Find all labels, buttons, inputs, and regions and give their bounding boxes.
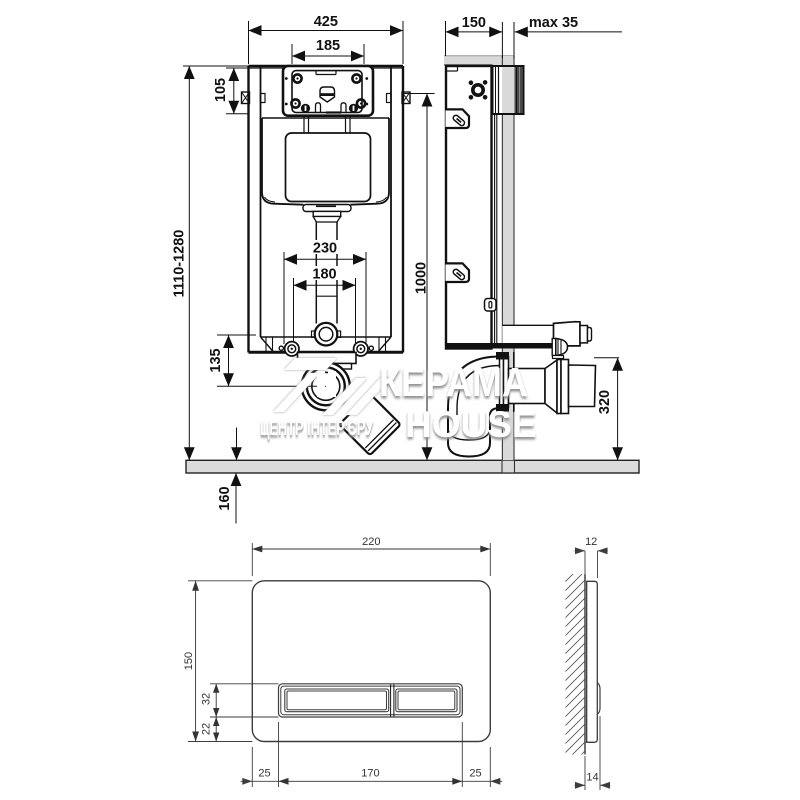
svg-text:32: 32 xyxy=(201,693,213,705)
svg-text:425: 425 xyxy=(314,14,338,30)
svg-text:КЕРАМА: КЕРАМА xyxy=(379,360,528,406)
svg-text:160: 160 xyxy=(217,486,233,510)
svg-text:1000: 1000 xyxy=(414,262,430,294)
svg-text:135: 135 xyxy=(208,348,224,372)
svg-text:14: 14 xyxy=(586,772,598,784)
svg-text:22: 22 xyxy=(201,723,213,735)
svg-text:1110-1280: 1110-1280 xyxy=(172,230,188,298)
svg-text:12: 12 xyxy=(585,536,597,548)
svg-text:185: 185 xyxy=(316,38,340,54)
svg-text:170: 170 xyxy=(361,768,379,780)
svg-text:320: 320 xyxy=(597,390,613,414)
svg-text:25: 25 xyxy=(469,768,481,780)
svg-text:220: 220 xyxy=(362,536,380,548)
svg-text:max 35: max 35 xyxy=(529,15,578,31)
svg-text:150: 150 xyxy=(183,652,195,670)
svg-text:180: 180 xyxy=(312,267,336,283)
svg-text:HOUSE: HOUSE xyxy=(405,404,537,445)
svg-text:105: 105 xyxy=(213,78,229,102)
svg-text:25: 25 xyxy=(258,768,270,780)
svg-text:ЦЕНТР ІНТЕР'ЄРУ: ЦЕНТР ІНТЕР'ЄРУ xyxy=(260,416,373,440)
svg-text:230: 230 xyxy=(313,241,337,257)
svg-text:150: 150 xyxy=(462,15,486,31)
